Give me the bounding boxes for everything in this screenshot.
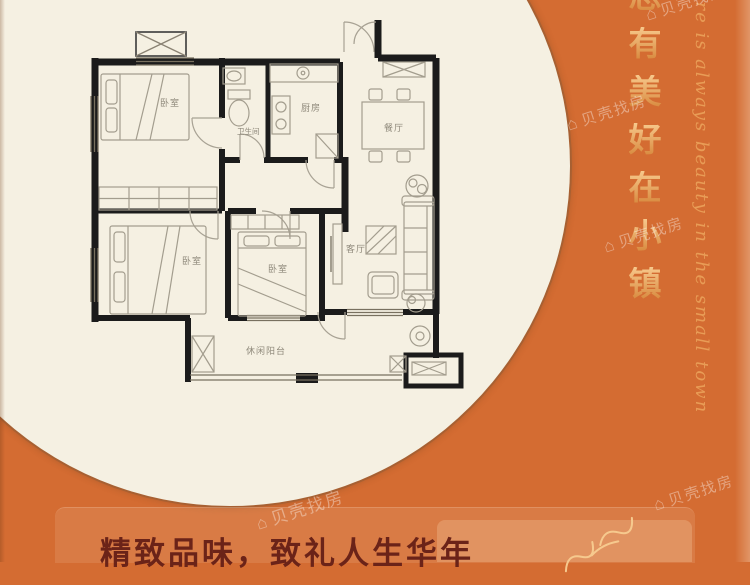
tv-stand bbox=[331, 224, 342, 284]
slogan-char: 有 bbox=[629, 27, 662, 60]
stool bbox=[368, 272, 398, 298]
slogan-char: 好 bbox=[629, 123, 662, 156]
footer-signature-panel bbox=[437, 520, 692, 562]
poster-page: { "theme": { "background": "#d46c32", "c… bbox=[0, 0, 750, 562]
furniture bbox=[99, 62, 446, 375]
room-label-bedroom-1: 卧室 bbox=[160, 96, 180, 109]
walls bbox=[95, 20, 461, 386]
room-label-kitchen: 厨房 bbox=[301, 101, 321, 114]
left-edge-shade bbox=[0, 0, 5, 562]
bed-2 bbox=[110, 226, 206, 314]
toilet bbox=[228, 90, 250, 126]
slogan-english-script: there is always beauty in the small town bbox=[691, 0, 712, 414]
shoe-cabinet bbox=[383, 62, 425, 77]
bath-sink bbox=[223, 68, 245, 84]
room-label-living: 客厅 bbox=[346, 242, 366, 255]
room-label-bathroom: 卫生间 bbox=[237, 126, 260, 137]
footer-title: 精致品味，致礼人生华年 bbox=[100, 538, 474, 569]
washer bbox=[410, 326, 430, 346]
sofa bbox=[402, 196, 434, 300]
window-backgrounds bbox=[88, 55, 404, 323]
coffee-table bbox=[366, 226, 396, 254]
room-label-bedroom-3: 卧室 bbox=[268, 262, 288, 275]
room-label-balcony: 休闲阳台 bbox=[246, 344, 286, 357]
balcony-cabinet bbox=[192, 336, 214, 372]
ac-unit-box bbox=[412, 362, 446, 375]
windows bbox=[91, 32, 403, 380]
plant-top bbox=[406, 175, 428, 197]
room-label-dining: 餐厅 bbox=[384, 121, 404, 134]
wardrobe-1 bbox=[99, 187, 217, 210]
room-label-bedroom-2: 卧室 bbox=[182, 254, 202, 267]
slogan-vertical-chinese: 总 有 美 好 在 小 镇 bbox=[627, 0, 663, 315]
slogan-char: 镇 bbox=[629, 267, 662, 300]
right-edge-highlight bbox=[735, 0, 750, 562]
slogan-char: 在 bbox=[629, 171, 662, 204]
